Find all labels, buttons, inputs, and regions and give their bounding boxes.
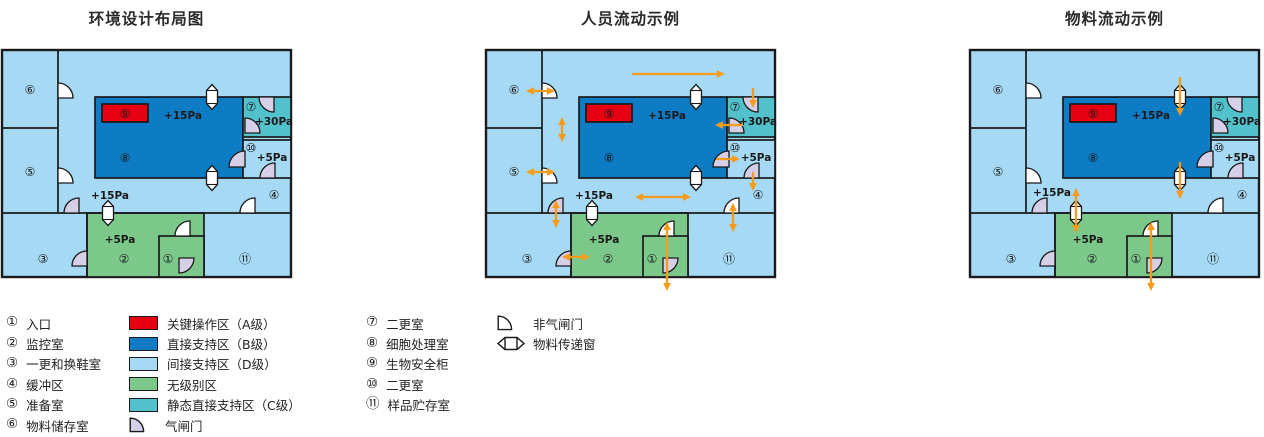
legend-column-rooms-2: ⑦二更室 ⑧细胞处理室 ⑨生物安全柜 ⑩二更室 ⑪样品贮存室 xyxy=(366,313,450,415)
transfer-window-icon xyxy=(691,85,702,110)
room-number-label: ⑪ xyxy=(239,252,251,266)
legend-item: ①入口 xyxy=(6,313,101,333)
legend-number: ⑦ xyxy=(366,316,378,330)
legend-item: ⑧细胞处理室 xyxy=(366,333,450,353)
non-airlock-door-icon xyxy=(497,315,527,331)
legend-item: ⑩二更室 xyxy=(366,374,450,394)
room-number-label: ⑧ xyxy=(604,151,615,165)
legend-label: 间接支持区（D级） xyxy=(167,354,277,373)
room-number-label: ⑩ xyxy=(246,141,257,155)
legend-item: ②监控室 xyxy=(6,333,101,353)
room-number-label: ⑥ xyxy=(993,83,1004,97)
room-number-label: ④ xyxy=(1237,188,1248,202)
room-number-label: ⑤ xyxy=(509,165,520,179)
plan-title: 人员流动示例 xyxy=(483,7,778,29)
pressure-label: +5Pa xyxy=(1225,152,1256,164)
legend-number: ⑪ xyxy=(366,398,380,412)
legend-item: ⑨生物安全柜 xyxy=(366,354,450,374)
pressure-label: +15Pa xyxy=(648,110,686,122)
legend-number: ① xyxy=(6,316,18,330)
legend-swatch-critical-zone xyxy=(129,316,158,330)
pressure-label: +5Pa xyxy=(1073,234,1104,246)
transfer-window-icon xyxy=(691,166,702,191)
arrow-head xyxy=(1147,283,1155,291)
legend-swatch-static-direct-support xyxy=(129,398,158,412)
floorplan-personnel-flow: 人员流动示例 ⑥⑤③②①⑪⑧⑨⑦⑩④+15Pa+30Pa+5Pa+5Pa+15P… xyxy=(483,0,778,300)
pressure-label: +30Pa xyxy=(739,116,777,128)
legend-number: ⑨ xyxy=(366,357,378,371)
legend-label: 监控室 xyxy=(26,334,64,353)
pressure-label: +15Pa xyxy=(1033,187,1071,199)
legend-label: 气闸门 xyxy=(165,416,203,435)
pressure-label: +15Pa xyxy=(575,190,613,202)
room-number-label: ⑨ xyxy=(120,107,131,121)
legend-label: 关键操作区（A级） xyxy=(167,314,276,333)
room-number-label: ⑤ xyxy=(25,165,36,179)
legend-item: 关键操作区（A级） xyxy=(129,313,301,333)
arrow-head xyxy=(663,283,671,291)
legend-label: 非气闸门 xyxy=(533,314,583,333)
transfer-window-icon xyxy=(497,336,527,351)
room-number-label: ② xyxy=(1087,252,1098,266)
floorplan-drawing: ⑥⑤③②①⑪⑧⑨⑦⑩④+15Pa+30Pa+5Pa+5Pa+15Pa xyxy=(483,47,778,297)
legend-label: 入口 xyxy=(26,314,51,333)
transfer-window-icon xyxy=(103,201,114,226)
legend-item: 非气闸门 xyxy=(497,313,596,333)
room-number-label: ⑦ xyxy=(730,100,741,114)
plan-title: 物料流动示例 xyxy=(967,7,1262,29)
legend-number: ④ xyxy=(6,378,18,392)
room-number-label: ⑨ xyxy=(604,107,615,121)
room-number-label: ① xyxy=(163,252,174,266)
legend-label: 生物安全柜 xyxy=(386,354,449,373)
legend-swatch-unclassified xyxy=(129,377,158,391)
transfer-window-icon xyxy=(207,85,218,110)
room-number-label: ② xyxy=(603,252,614,266)
pressure-label: +5Pa xyxy=(741,152,772,164)
cleanroom-layout-figure: { "colors": { "light_blue": "#A6D9F3", "… xyxy=(0,0,1264,437)
legend-column-rooms-1: ①入口 ②监控室 ③一更和换鞋室 ④缓冲区 ⑤准备室 ⑥物料储存室 xyxy=(6,313,101,435)
pressure-label: +5Pa xyxy=(589,234,620,246)
legend-item: 气闸门 xyxy=(129,415,301,435)
legend: ①入口 ②监控室 ③一更和换鞋室 ④缓冲区 ⑤准备室 ⑥物料储存室 关键操作区（… xyxy=(0,313,1264,437)
room-number-label: ③ xyxy=(1006,252,1017,266)
legend-item: 静态直接支持区（C级） xyxy=(129,395,301,415)
legend-item: ⑦二更室 xyxy=(366,313,450,333)
room-number-label: ⑦ xyxy=(246,100,257,114)
pressure-label: +5Pa xyxy=(105,234,136,246)
transfer-window-icon xyxy=(207,166,218,191)
legend-number: ⑥ xyxy=(6,418,18,432)
transfer-window-icon xyxy=(587,201,598,226)
airlock-door-icon xyxy=(129,417,159,433)
pressure-label: +15Pa xyxy=(91,190,129,202)
legend-item: ③一更和换鞋室 xyxy=(6,354,101,374)
floorplan-drawing: ⑥⑤③②①⑪⑧⑨⑦⑩④+15Pa+30Pa+5Pa+5Pa+15Pa xyxy=(967,47,1262,297)
pressure-label: +15Pa xyxy=(1132,110,1170,122)
room-number-label: ⑨ xyxy=(1088,107,1099,121)
legend-item: 间接支持区（D级） xyxy=(129,354,301,374)
legend-label: 准备室 xyxy=(26,395,64,414)
legend-number: ② xyxy=(6,337,18,351)
room-number-label: ⑩ xyxy=(1214,141,1225,155)
legend-label: 物料传递窗 xyxy=(533,334,596,353)
floorplan-material-flow: 物料流动示例 ⑥⑤③②①⑪⑧⑨⑦⑩④+15Pa+30Pa+5Pa+5Pa+15P… xyxy=(967,0,1262,300)
legend-column-zones: 关键操作区（A级） 直接支持区（B级） 间接支持区（D级） 无级别区 静态直接支… xyxy=(129,313,301,435)
legend-number: ⑧ xyxy=(366,337,378,351)
legend-label: 样品贮存室 xyxy=(388,395,451,414)
legend-label: 二更室 xyxy=(386,375,424,394)
plan-title: 环境设计布局图 xyxy=(0,7,294,29)
legend-label: 缓冲区 xyxy=(26,375,64,394)
room-number-label: ⑥ xyxy=(509,83,520,97)
legend-column-symbols: 非气闸门 物料传递窗 xyxy=(497,313,596,354)
floorplan-environment-layout: 环境设计布局图 ⑥⑤③②①⑪⑧⑨⑦⑩④+15Pa+30Pa+5Pa+5Pa+15… xyxy=(0,0,294,300)
room-number-label: ⑪ xyxy=(1207,252,1219,266)
room-number-label: ⑧ xyxy=(120,151,131,165)
legend-number: ③ xyxy=(6,357,18,371)
legend-label: 一更和换鞋室 xyxy=(26,354,101,373)
legend-item: ④缓冲区 xyxy=(6,374,101,394)
legend-item: ⑪样品贮存室 xyxy=(366,395,450,415)
room-number-label: ② xyxy=(119,252,130,266)
legend-item: 无级别区 xyxy=(129,374,301,394)
legend-label: 静态直接支持区（C级） xyxy=(167,395,301,414)
legend-item: 直接支持区（B级） xyxy=(129,333,301,353)
legend-label: 细胞处理室 xyxy=(386,334,449,353)
legend-swatch-direct-support xyxy=(129,337,158,351)
legend-label: 直接支持区（B级） xyxy=(167,334,276,353)
room-number-label: ① xyxy=(647,252,658,266)
floorplan-drawing: ⑥⑤③②①⑪⑧⑨⑦⑩④+15Pa+30Pa+5Pa+5Pa+15Pa xyxy=(0,47,294,297)
legend-label: 物料储存室 xyxy=(26,416,89,435)
pressure-label: +15Pa xyxy=(164,110,202,122)
room-number-label: ⑥ xyxy=(25,83,36,97)
room-number-label: ④ xyxy=(753,188,764,202)
room-number-label: ⑧ xyxy=(1088,151,1099,165)
legend-label: 无级别区 xyxy=(167,375,217,394)
pressure-label: +30Pa xyxy=(255,116,293,128)
room-number-label: ③ xyxy=(522,252,533,266)
legend-number: ⑩ xyxy=(366,378,378,392)
pressure-label: +5Pa xyxy=(257,152,288,164)
room-number-label: ③ xyxy=(38,252,49,266)
room-number-label: ⑪ xyxy=(723,252,735,266)
legend-label: 二更室 xyxy=(386,314,424,333)
legend-item: ⑥物料储存室 xyxy=(6,415,101,435)
legend-item: 物料传递窗 xyxy=(497,333,596,353)
room-number-label: ① xyxy=(1131,252,1142,266)
legend-number: ⑤ xyxy=(6,398,18,412)
room-number-label: ④ xyxy=(269,188,280,202)
pressure-label: +30Pa xyxy=(1223,116,1261,128)
room-number-label: ⑤ xyxy=(993,165,1004,179)
room-number-label: ⑩ xyxy=(730,141,741,155)
legend-swatch-indirect-support xyxy=(129,357,158,371)
legend-item: ⑤准备室 xyxy=(6,395,101,415)
room-number-label: ⑦ xyxy=(1214,100,1225,114)
